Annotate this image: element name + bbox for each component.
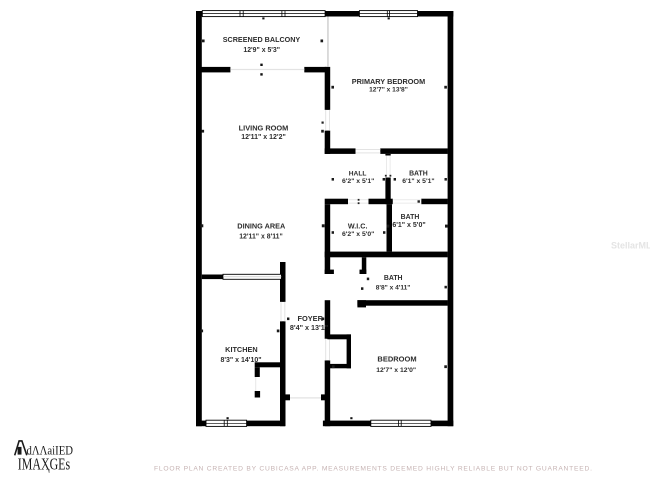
svg-text:12'7" x 13'8": 12'7" x 13'8" (369, 87, 408, 94)
svg-text:PRIMARY BEDROOM: PRIMARY BEDROOM (352, 77, 425, 86)
svg-text:6'1" x 5'0": 6'1" x 5'0" (392, 222, 425, 229)
svg-text:SCREENED BALCONY: SCREENED BALCONY (223, 35, 301, 44)
svg-text:KITCHEN: KITCHEN (225, 345, 257, 354)
svg-text:12'11" x 12'2": 12'11" x 12'2" (241, 134, 286, 141)
svg-text:8'4" x 13'1": 8'4" x 13'1" (290, 323, 328, 332)
svg-text:BATH: BATH (409, 170, 428, 177)
svg-text:StellarMLS: StellarMLS (611, 241, 650, 251)
svg-text:FLOOR PLAN CREATED BY CUBICASA: FLOOR PLAN CREATED BY CUBICASA APP. MEAS… (154, 465, 593, 472)
svg-text:6'2" x 5'1": 6'2" x 5'1" (342, 178, 374, 185)
svg-text:8'8" x 4'11": 8'8" x 4'11" (376, 284, 411, 291)
svg-text:6'2" x 5'0": 6'2" x 5'0" (342, 231, 374, 238)
svg-text:HALL: HALL (349, 170, 367, 177)
svg-text:LIVING ROOM: LIVING ROOM (239, 124, 289, 133)
svg-text:12'9" x 5'3": 12'9" x 5'3" (243, 47, 280, 54)
svg-text:BEDROOM: BEDROOM (377, 354, 416, 363)
svg-text:W.I.C.: W.I.C. (348, 221, 368, 230)
svg-text:8'3" x 14'10": 8'3" x 14'10" (220, 357, 261, 364)
svg-text:FOYER: FOYER (297, 314, 323, 323)
svg-text:DINING AREA: DINING AREA (237, 222, 286, 231)
svg-text:12'11" x 8'11": 12'11" x 8'11" (239, 233, 283, 240)
svg-text:6'1" x 5'1": 6'1" x 5'1" (402, 178, 434, 185)
svg-text:BATH: BATH (401, 214, 420, 221)
svg-text:BATH: BATH (384, 275, 403, 282)
svg-text:12'7" x 12'0": 12'7" x 12'0" (376, 367, 416, 374)
svg-text:IMАҲGЕs: IMАҲGЕs (18, 455, 70, 474)
